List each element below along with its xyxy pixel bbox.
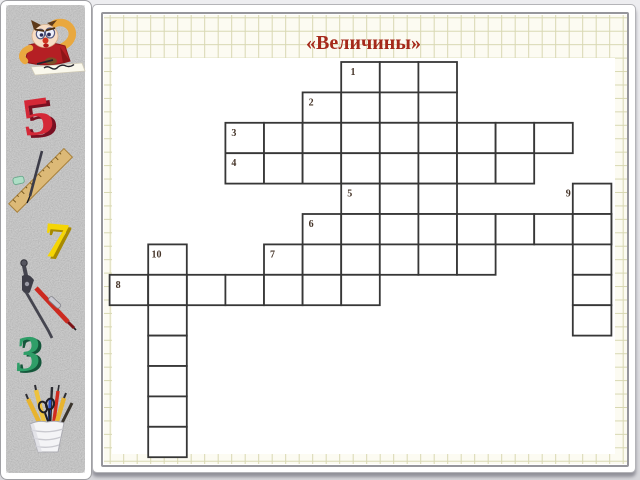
svg-text:5: 5 [347, 189, 352, 200]
svg-text:1: 1 [351, 67, 356, 78]
svg-text:3: 3 [231, 128, 236, 139]
svg-text:10: 10 [152, 249, 162, 260]
svg-text:9: 9 [566, 189, 571, 200]
svg-text:8: 8 [116, 280, 121, 291]
svg-text:7: 7 [41, 211, 71, 269]
svg-text:6: 6 [309, 219, 314, 230]
svg-text:2: 2 [309, 97, 314, 108]
svg-text:4: 4 [231, 158, 236, 169]
svg-text:7: 7 [270, 249, 275, 260]
